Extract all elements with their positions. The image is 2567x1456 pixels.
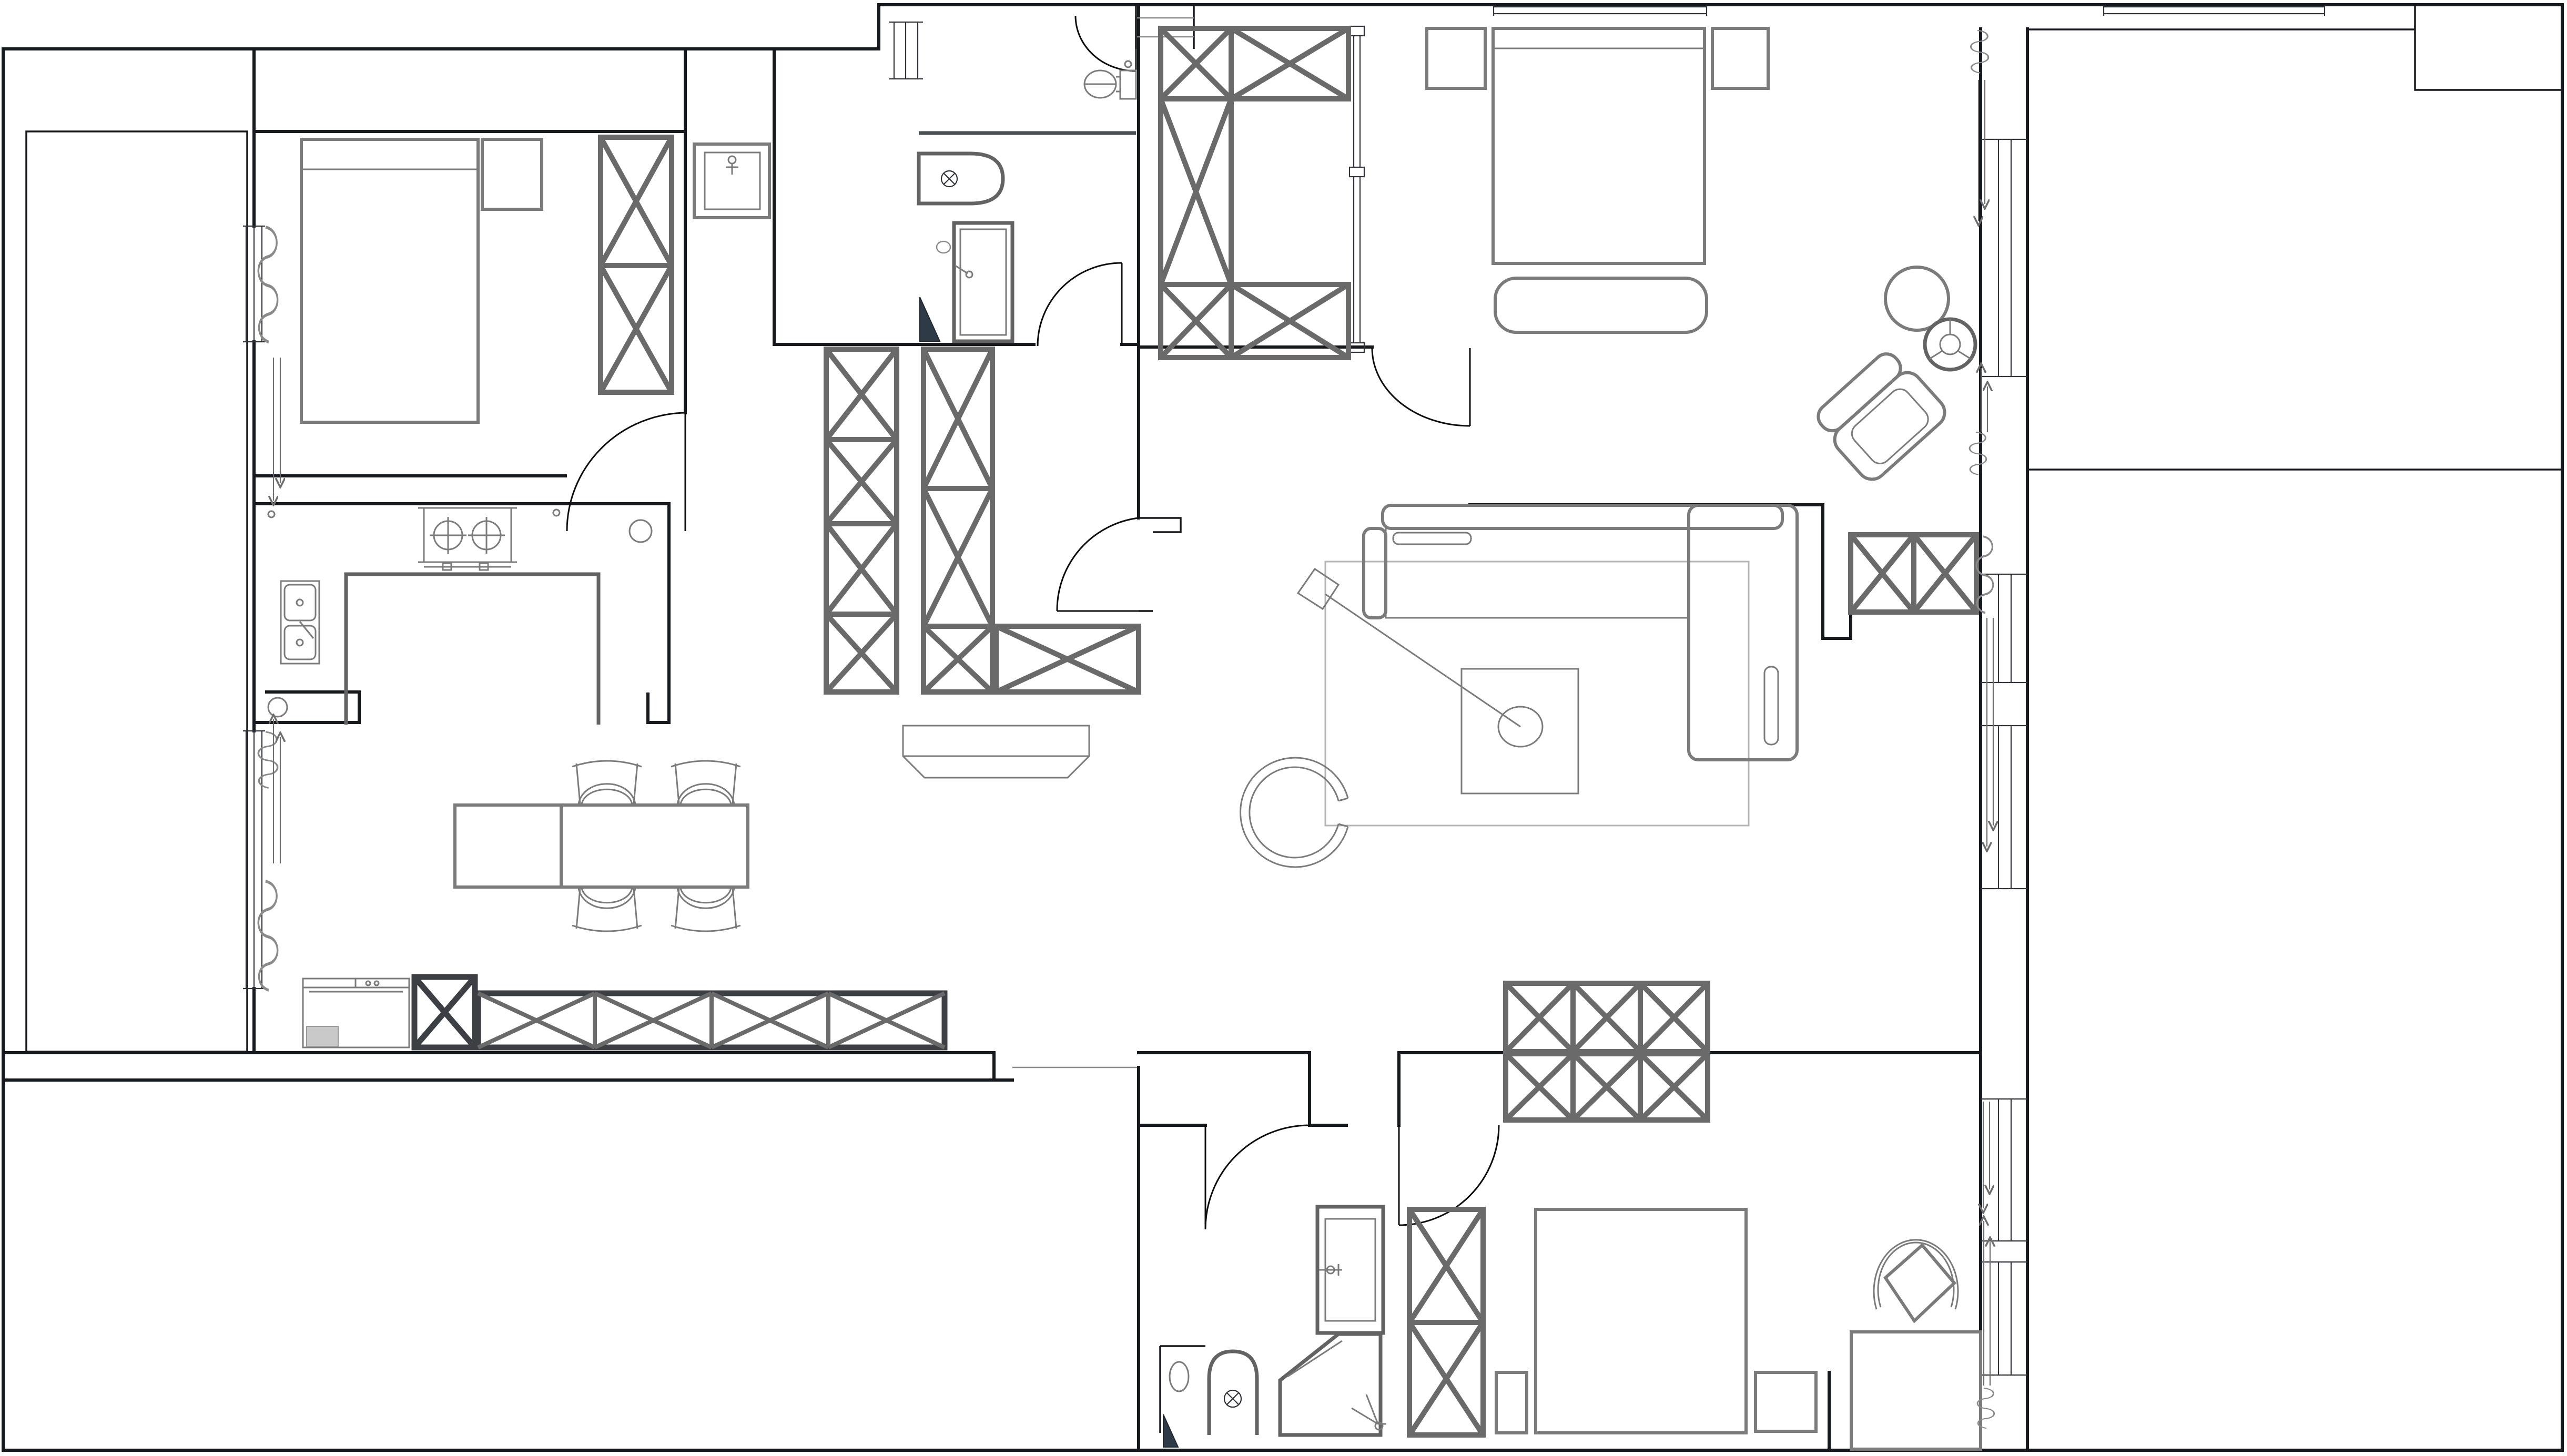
window-left-bottom [243, 731, 265, 989]
floor-drain-icon [937, 241, 950, 253]
dining-area [303, 761, 945, 1047]
wardrobe-cell [601, 137, 672, 266]
small-washbasin[interactable] [1160, 1346, 1205, 1447]
curtain-squiggle [258, 732, 277, 788]
nightstand [482, 139, 542, 209]
service-circle [268, 698, 287, 717]
round-lounge-chair[interactable] [1241, 758, 1348, 867]
wardrobe-cell [601, 266, 672, 392]
shower-handle-icon [966, 271, 972, 278]
tall-cabinet [414, 977, 475, 1047]
coffee-table[interactable] [1462, 669, 1578, 793]
nightstand [1712, 28, 1768, 88]
straddling-cabinets [1506, 983, 1708, 1120]
bathroom-top [919, 61, 1136, 341]
dining-chair[interactable] [572, 761, 642, 804]
nightstand [1756, 1372, 1816, 1431]
curtain-squiggle [258, 881, 277, 990]
toilet[interactable] [1084, 61, 1136, 99]
door-bathroom-top[interactable] [1038, 263, 1122, 346]
entry-wardrobe [1161, 28, 1348, 358]
bench [1495, 278, 1707, 332]
faucet-icon [728, 156, 736, 164]
armchair[interactable] [1810, 347, 1951, 485]
curtain-squiggle [1970, 432, 1986, 475]
balcony-left [26, 131, 247, 1052]
desk-chair[interactable] [1874, 1240, 1958, 1321]
door-bathroom-bottom[interactable] [1205, 1125, 1310, 1229]
door-leaf-dark [920, 297, 940, 341]
bed [1536, 1209, 1746, 1433]
corner-shower[interactable] [1280, 1334, 1386, 1435]
floor-plan [0, 0, 2567, 1456]
service-dot [553, 510, 560, 516]
side-table-ring [1925, 319, 1975, 370]
toilet-arch[interactable] [1209, 1351, 1257, 1435]
refrigerator[interactable] [303, 979, 409, 1047]
bathroom-bottom [1160, 1207, 1483, 1447]
sliding-door-track[interactable] [1350, 26, 1364, 352]
tv-cabinet-cell [1851, 535, 1914, 612]
window-top-right [2104, 5, 2325, 16]
outer-walls [3, 5, 2562, 1450]
door-wc[interactable] [1075, 16, 1136, 71]
window-left-top [243, 226, 265, 342]
direction-arrows [273, 80, 1993, 1386]
rug [1325, 562, 1749, 826]
dining-chair[interactable] [671, 888, 740, 931]
windows [243, 5, 2325, 1375]
curtains [258, 30, 1994, 1428]
tv-cabinet-cell [1914, 535, 1976, 612]
bedroom-top-right [1427, 28, 1975, 485]
cushion [1885, 1245, 1954, 1321]
service-circle [630, 520, 652, 542]
window-wc-niche [889, 22, 923, 79]
living-room [1241, 505, 1976, 1120]
dining-chair[interactable] [671, 761, 740, 804]
bathtub[interactable] [919, 154, 1003, 203]
wardrobe-cell [1409, 1322, 1483, 1435]
curtain-squiggle [258, 227, 277, 342]
shower-cabin[interactable] [920, 223, 1012, 341]
nightstand [1496, 1372, 1527, 1433]
door-hall-living[interactable] [1057, 518, 1139, 611]
bed [1493, 28, 1704, 263]
bedroom-bottom [1496, 1209, 1981, 1449]
console-table [903, 726, 1089, 778]
vanity[interactable] [1317, 1207, 1383, 1333]
desk [1851, 1332, 1981, 1449]
dining-table[interactable] [455, 805, 748, 887]
hall-wardrobes [826, 349, 1139, 778]
stove[interactable] [418, 508, 517, 570]
u-counter [346, 574, 598, 725]
nightstand [1427, 28, 1485, 88]
sideboard[interactable] [478, 993, 945, 1047]
bed [301, 139, 478, 422]
service-dot [268, 511, 275, 517]
kitchen-sink[interactable] [281, 581, 319, 664]
vanity-niche [694, 144, 769, 218]
dining-chair[interactable] [572, 888, 642, 931]
window-band-right [1981, 139, 2027, 1375]
bedroom-top-left [301, 137, 672, 422]
arc-floor-lamp[interactable] [1298, 569, 1543, 747]
sofa[interactable] [1364, 505, 1797, 760]
window-top-bedroom2 [1494, 5, 1707, 16]
door-bedroom2[interactable] [1372, 348, 1470, 426]
wardrobe-cell [1409, 1209, 1483, 1322]
door-leaf-dark [1163, 1414, 1178, 1447]
